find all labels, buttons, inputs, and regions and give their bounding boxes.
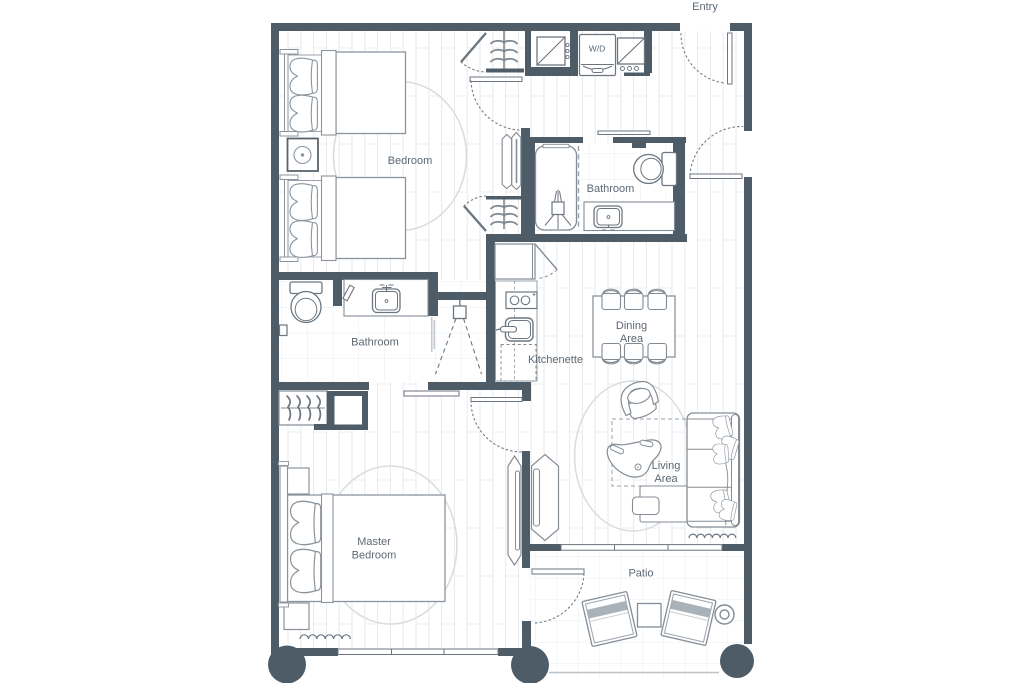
svg-text:W/D: W/D: [589, 44, 606, 54]
svg-text:Bathroom: Bathroom: [587, 183, 635, 195]
svg-text:Living: Living: [652, 460, 681, 472]
svg-text:Area: Area: [654, 473, 678, 485]
svg-text:Patio: Patio: [628, 568, 653, 580]
svg-text:Master: Master: [357, 536, 391, 548]
svg-text:Bedroom: Bedroom: [388, 155, 433, 167]
svg-text:Bedroom: Bedroom: [352, 550, 397, 562]
svg-text:Kitchenette: Kitchenette: [528, 354, 583, 366]
svg-text:Dining: Dining: [616, 320, 647, 332]
svg-text:Bathroom: Bathroom: [351, 337, 399, 349]
svg-text:Entry: Entry: [692, 1, 718, 13]
svg-text:Area: Area: [620, 333, 644, 345]
